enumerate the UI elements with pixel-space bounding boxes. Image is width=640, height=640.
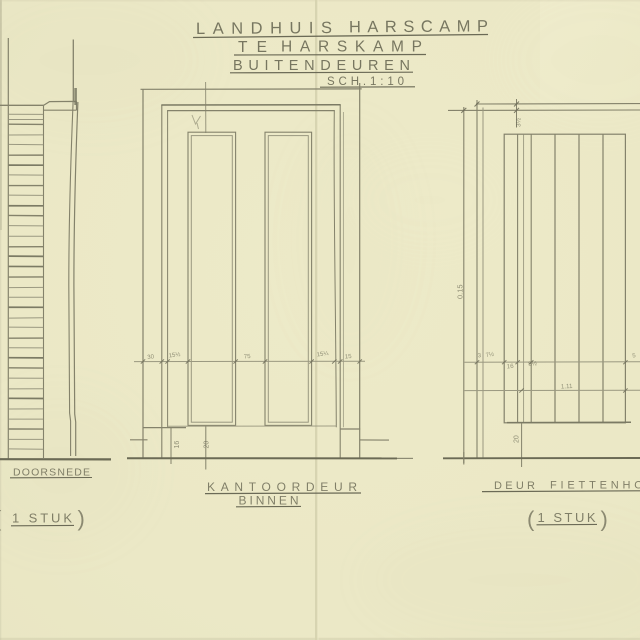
svg-text:0.15: 0.15 — [456, 284, 465, 299]
svg-text:): ) — [78, 506, 85, 531]
svg-text:): ) — [601, 507, 608, 532]
svg-text:(: ( — [527, 507, 535, 532]
svg-text:SCH.1:10: SCH.1:10 — [327, 76, 404, 88]
svg-text:1 STUK: 1 STUK — [538, 510, 596, 525]
svg-text:16: 16 — [174, 441, 181, 449]
svg-text:75: 75 — [244, 354, 252, 361]
svg-text:8½: 8½ — [528, 360, 537, 368]
svg-text:15: 15 — [345, 354, 353, 361]
svg-text:20: 20 — [203, 441, 210, 449]
svg-text:3½: 3½ — [515, 117, 523, 127]
svg-text:1.11: 1.11 — [561, 383, 573, 391]
svg-text:FIETTENHOK: FIETTENHOK — [550, 480, 640, 492]
svg-text:7½: 7½ — [485, 351, 494, 359]
svg-text:DOORSNEDE: DOORSNEDE — [13, 467, 90, 479]
svg-text:30: 30 — [147, 354, 155, 361]
svg-text:20: 20 — [514, 435, 521, 443]
svg-text:16: 16 — [506, 363, 514, 371]
